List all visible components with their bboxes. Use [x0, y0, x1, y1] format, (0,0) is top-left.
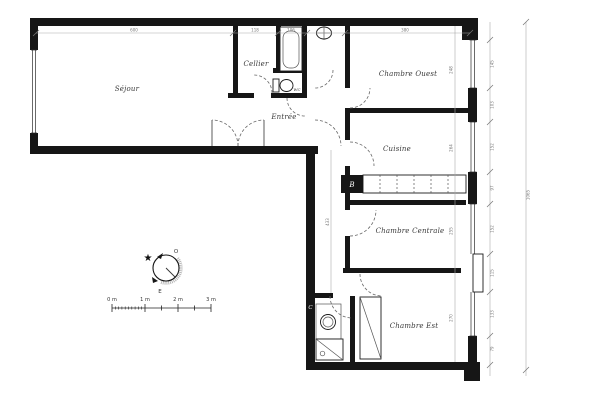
dim-depth-centrale: 255	[449, 227, 454, 235]
label-cellier: Cellier	[243, 60, 269, 68]
dim-depth-est: 270	[449, 314, 454, 322]
chambre-centrale-door-icon	[350, 210, 376, 236]
dim-top-cellier: 118	[251, 28, 259, 33]
dim-depth-ouest: 248	[449, 66, 454, 74]
scale-label-0m: 0 m	[107, 297, 117, 303]
bathtub-icon	[280, 27, 302, 71]
dim-top-bath: 106	[287, 28, 295, 33]
dim-right-2: 103	[490, 101, 495, 109]
compass-star-icon: ★	[144, 253, 153, 264]
door-arcs	[212, 70, 382, 318]
sejour-window-icon	[31, 50, 37, 133]
floor-plan-canvas: B C	[0, 0, 600, 400]
dim-right-7: 133	[490, 310, 495, 318]
shower-icon	[316, 339, 343, 360]
bath-alcove-door-icon	[315, 70, 333, 88]
dim-right-3: 152	[490, 143, 495, 151]
toilet-icon	[273, 79, 293, 92]
entree-corridor-door-icon	[315, 120, 341, 146]
duct-b-label: B	[348, 181, 354, 189]
dim-top-sejour: 600	[130, 28, 138, 33]
sejour-double-door-icon	[212, 120, 264, 146]
compass-east-label: E	[158, 289, 162, 295]
scale-bar: 0 m 1 m 2 m 3 m	[107, 297, 216, 312]
cellier-door-icon	[254, 75, 272, 93]
dim-corridor: 433	[325, 218, 330, 226]
label-wc: WC	[293, 87, 300, 92]
compass-west-label: O	[174, 249, 179, 255]
chambre-ouest-door-icon	[350, 88, 370, 108]
dim-top-chambre: 380	[401, 28, 409, 33]
label-chambre-est: Chambre Est	[390, 322, 439, 330]
scale-label-3m: 3 m	[206, 297, 216, 303]
dim-right-overall: 1065	[526, 189, 531, 200]
dim-right-1: 145	[490, 60, 495, 68]
dim-right-8: 79	[490, 346, 495, 352]
cuisine-window-icon	[470, 122, 477, 172]
cuisine-door-icon	[350, 142, 374, 166]
kitchen-counter-icon	[363, 175, 466, 193]
scale-label-1m: 1 m	[140, 297, 150, 303]
chambre-est-window-icon	[470, 292, 477, 336]
chambre-ouest-window-icon	[470, 40, 477, 88]
label-cuisine: Cuisine	[383, 145, 411, 153]
duct-b-marker: B	[341, 175, 363, 193]
dim-depth-cuisine: 264	[449, 144, 454, 152]
closet-icon	[360, 297, 381, 359]
dim-right-5: 152	[490, 225, 495, 233]
dim-right-4: 97	[490, 185, 495, 191]
floor-plan-drawing: B C	[0, 0, 600, 400]
dim-right-6: 115	[490, 269, 495, 277]
compass-rose: ★ O E	[144, 249, 181, 295]
chambre-est-door-icon	[360, 274, 382, 296]
label-entree: Entrée	[270, 113, 296, 121]
label-chambre-ouest: Chambre Ouest	[379, 70, 437, 78]
balcony-door-leaf-icon	[473, 254, 483, 292]
room-labels: Séjour Cellier WC Entrée Chambre Ouest C…	[115, 60, 445, 330]
scale-label-2m: 2 m	[173, 297, 183, 303]
chambre-centrale-window-icon	[470, 204, 477, 254]
label-sejour: Séjour	[115, 85, 140, 93]
vanity-basin-icon	[316, 304, 341, 339]
label-chambre-centrale: Chambre Centrale	[376, 227, 445, 235]
